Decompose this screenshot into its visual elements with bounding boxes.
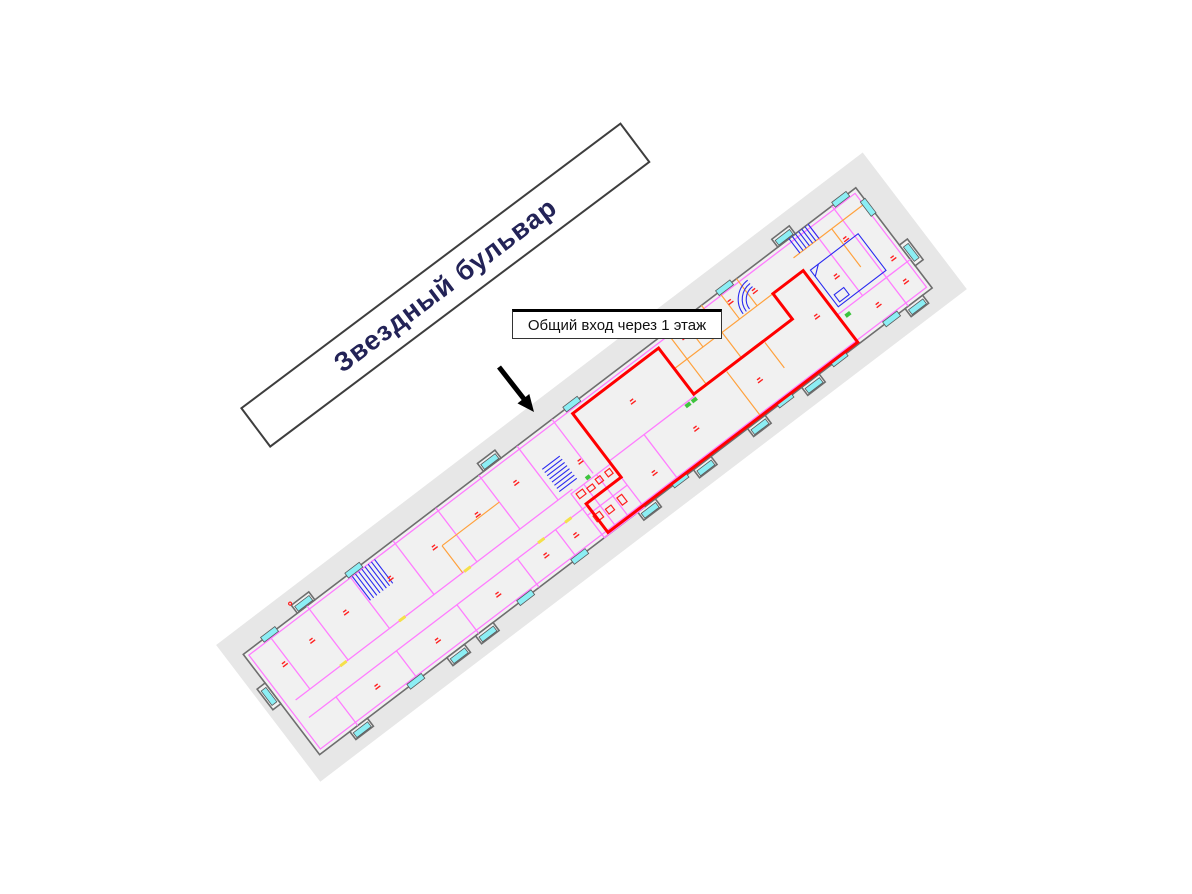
entrance-callout: Общий вход через 1 этаж (512, 309, 722, 339)
street-name: Звездный бульвар (328, 191, 563, 378)
floor-plan-svg (216, 152, 967, 781)
floor-plan-figure: Звездный бульвар (0, 0, 1192, 894)
building-plan (216, 152, 967, 781)
entrance-callout-text: Общий вход через 1 этаж (528, 317, 706, 334)
entrance-arrow-icon (490, 360, 550, 420)
building-outline (229, 174, 946, 769)
